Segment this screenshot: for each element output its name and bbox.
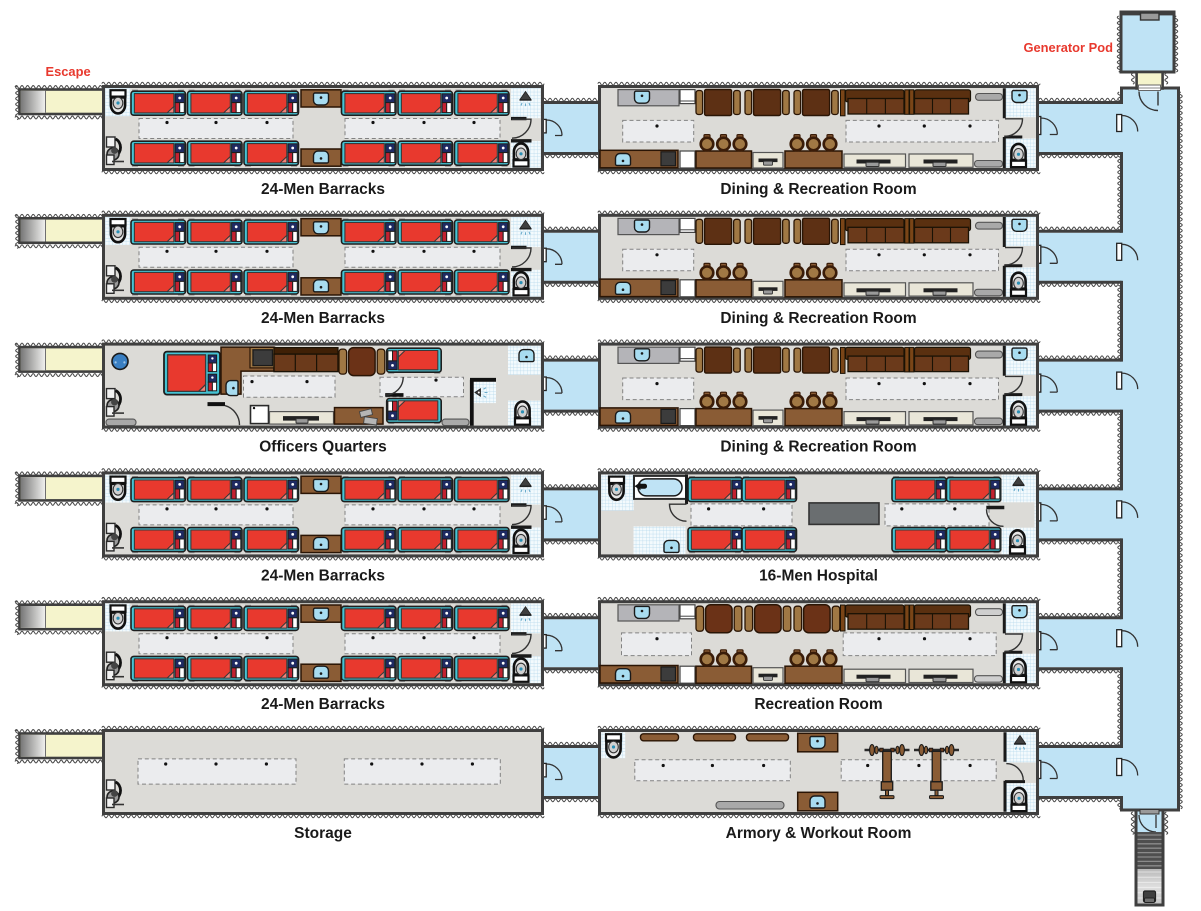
- svg-text:Officers Quarters: Officers Quarters: [259, 439, 387, 456]
- svg-text:24-Men Barracks: 24-Men Barracks: [261, 696, 385, 713]
- svg-text:Dining & Recreation Room: Dining & Recreation Room: [720, 310, 916, 327]
- svg-text:Dining & Recreation Room: Dining & Recreation Room: [720, 181, 916, 198]
- svg-text:Dining & Recreation Room: Dining & Recreation Room: [720, 439, 916, 456]
- svg-text:Escape: Escape: [46, 64, 91, 79]
- svg-text:24-Men Barracks: 24-Men Barracks: [261, 567, 385, 584]
- svg-text:Generator Pod: Generator Pod: [1023, 40, 1113, 55]
- svg-text:24-Men Barracks: 24-Men Barracks: [261, 181, 385, 198]
- svg-text:Armory & Workout Room: Armory & Workout Room: [726, 825, 912, 842]
- svg-text:24-Men Barracks: 24-Men Barracks: [261, 310, 385, 327]
- svg-text:16-Men Hospital: 16-Men Hospital: [759, 567, 878, 584]
- svg-text:Recreation Room: Recreation Room: [754, 696, 882, 713]
- svg-text:Storage: Storage: [294, 825, 352, 842]
